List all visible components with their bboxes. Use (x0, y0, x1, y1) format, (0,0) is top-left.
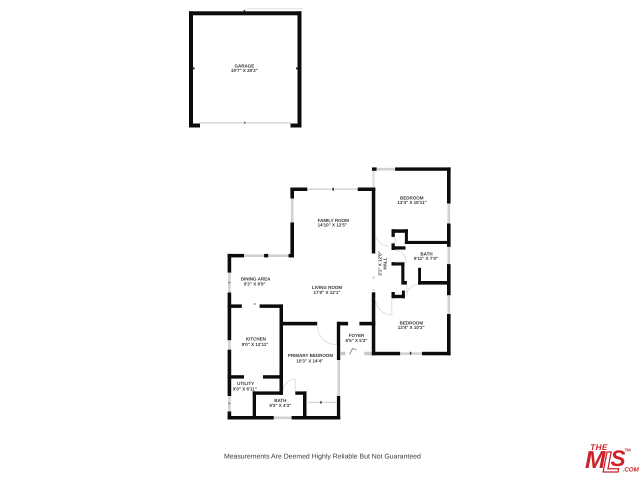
svg-text:9'11" X 7'0": 9'11" X 7'0" (414, 256, 438, 261)
svg-text:6'5" X 5'3": 6'5" X 5'3" (346, 338, 368, 343)
svg-text:9'2" X 4'3": 9'2" X 4'3" (269, 403, 291, 408)
svg-text:13'4" X 10'11": 13'4" X 10'11" (397, 200, 426, 205)
svg-text:9'3" X 8'9": 9'3" X 8'9" (244, 281, 266, 286)
svg-text:9'0" X 6'11": 9'0" X 6'11" (233, 387, 257, 392)
svg-text:14'10" X 12'5": 14'10" X 12'5" (318, 222, 347, 227)
svg-text:17'0" X 12'1": 17'0" X 12'1" (314, 290, 341, 295)
svg-text:HALL: HALL (382, 257, 387, 269)
svg-text:13'4" X 10'2": 13'4" X 10'2" (398, 325, 425, 330)
svg-text:19'7" X 20'2": 19'7" X 20'2" (231, 68, 258, 73)
svg-text:UTILITY: UTILITY (237, 381, 254, 386)
svg-text:10'3" X 14'4": 10'3" X 14'4" (296, 359, 323, 364)
svg-text:.COM: .COM (623, 467, 640, 474)
svg-text:KITCHEN: KITCHEN (246, 337, 266, 342)
svg-text:9'0" X 12'11": 9'0" X 12'11" (242, 342, 269, 347)
svg-text:Measurements Are Deemed Highly: Measurements Are Deemed Highly Reliable … (224, 453, 421, 460)
svg-text:PRIMARY BEDROOM: PRIMARY BEDROOM (288, 353, 334, 358)
svg-text:TM: TM (625, 448, 632, 453)
